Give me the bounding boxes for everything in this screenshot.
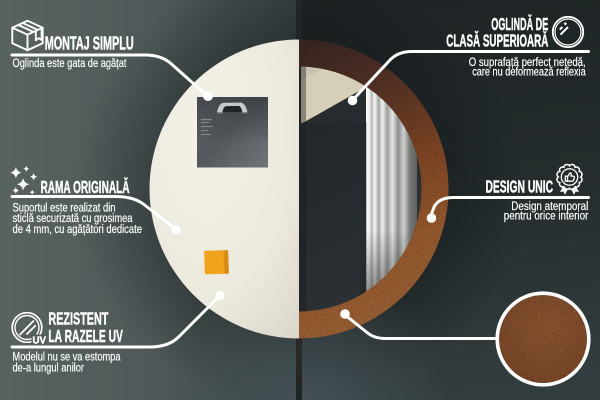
svg-text:care nu deformează reflexia: care nu deformează reflexia (472, 65, 586, 79)
svg-text:CLASĂ SUPERIOARĂ: CLASĂ SUPERIOARĂ (446, 30, 548, 51)
svg-text:MONTAJ SIMPLU: MONTAJ SIMPLU (45, 34, 134, 54)
svg-text:de 4 mm, cu agățători dedicate: de 4 mm, cu agățători dedicate (13, 222, 143, 236)
svg-text:UV: UV (33, 335, 47, 347)
svg-text:LA RAZELE UV: LA RAZELE UV (48, 326, 123, 346)
svg-text:pentru orice interior: pentru orice interior (504, 209, 589, 223)
svg-text:RAMA ORIGINALĂ: RAMA ORIGINALĂ (41, 176, 130, 197)
svg-text:de-a lungul anilor: de-a lungul anilor (13, 360, 85, 374)
svg-text:DESIGN UNIC: DESIGN UNIC (486, 177, 554, 197)
svg-text:Oglinda este gata de agățat: Oglinda este gata de agățat (13, 56, 127, 70)
